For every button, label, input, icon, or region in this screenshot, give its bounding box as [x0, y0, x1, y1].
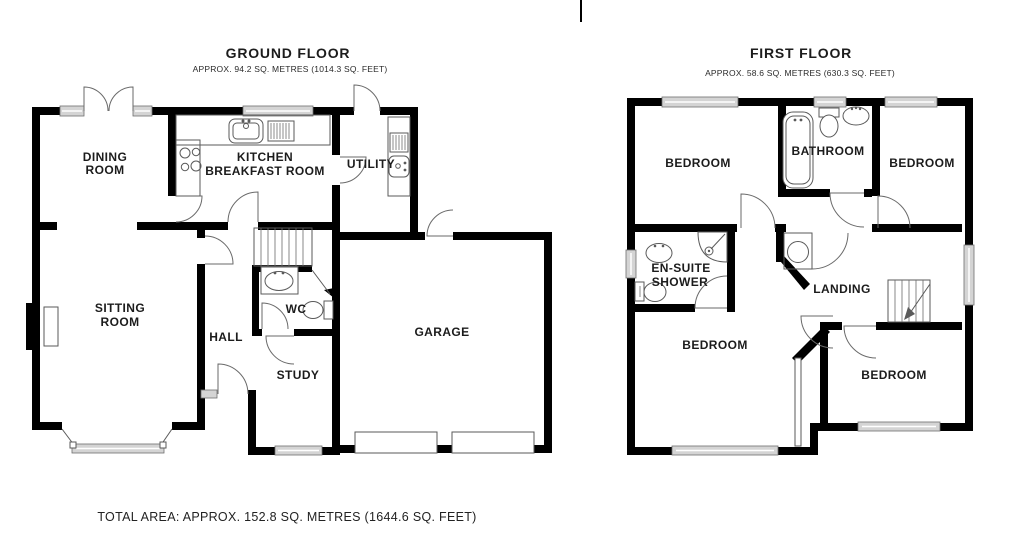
en-suite-window: [626, 250, 636, 278]
sitting-room-label: SITTING: [95, 301, 145, 315]
utility-back-door: [354, 85, 380, 111]
hall-label: HALL: [209, 330, 243, 344]
dining-kitchen-door: [176, 196, 202, 222]
bathroom-door: [830, 193, 864, 227]
first-floor-subtitle: APPROX. 58.6 SQ. METRES (630.3 SQ. FEET): [705, 68, 895, 78]
toilet-icon: [819, 108, 839, 137]
dining-window-left: [60, 106, 84, 116]
hall-kitchen-door: [228, 192, 258, 222]
total-area-text: TOTAL AREA: APPROX. 152.8 SQ. METRES (16…: [97, 510, 476, 524]
bay-window: [62, 429, 172, 453]
chimney-breast: [26, 303, 40, 350]
draining-board-icon: [268, 121, 294, 141]
bathroom-label: BATHROOM: [792, 144, 865, 158]
basin-icon: [843, 107, 869, 125]
page-divider-mark: [580, 0, 582, 22]
study-door: [266, 336, 294, 364]
wc-label: WC: [286, 302, 307, 316]
dining-window-right: [133, 106, 152, 116]
garage-door-right: [452, 432, 534, 453]
french-doors: [84, 87, 133, 111]
first-floor-title: FIRST FLOOR: [750, 45, 852, 61]
bedroom-tl-door: [741, 194, 775, 228]
utility-label: UTILITY: [347, 157, 395, 171]
bedroom-br-window: [858, 422, 940, 431]
bathroom-window: [814, 97, 846, 107]
bedroom-tl-window: [662, 97, 738, 107]
bedroom-tr-label: BEDROOM: [889, 156, 954, 170]
kitchen-sink-icon: [229, 119, 263, 143]
garage-side-door: [427, 210, 453, 236]
bedroom-tl-label: BEDROOM: [665, 156, 730, 170]
staircase-first: [888, 280, 930, 322]
sitting-hall-door: [205, 236, 233, 264]
utility-appliance-icon: [390, 133, 408, 152]
dining-room-label: DINING: [83, 150, 127, 164]
dining-room-label-2: ROOM: [86, 163, 125, 177]
wardrobe-partition: [795, 358, 801, 446]
landing-label: LANDING: [813, 282, 870, 296]
bedroom-tr-door: [878, 196, 910, 228]
front-door: [218, 364, 248, 394]
ground-floor-plan: DINING ROOM KITCHEN BREAKFAST ROOM UTILI…: [26, 85, 552, 455]
bedroom-br-label: BEDROOM: [861, 368, 926, 382]
bedroom-br-door: [844, 326, 876, 358]
wc-basin-icon: [261, 267, 298, 294]
sitting-room-label-2: ROOM: [101, 315, 140, 329]
study-label: STUDY: [277, 368, 320, 382]
floorplan-drawing: GROUND FLOOR APPROX. 94.2 SQ. METRES (10…: [0, 0, 1016, 544]
shower-cubicle-icon: [698, 232, 727, 262]
first-floor-plan: BEDROOM BATHROOM BEDROOM EN-SUITE SHOWER…: [626, 97, 974, 455]
kitchen-label-2: BREAKFAST ROOM: [205, 164, 325, 178]
bedroom-bl-window: [672, 446, 778, 455]
en-suite-basin-icon: [646, 244, 672, 263]
ground-floor-subtitle: APPROX. 94.2 SQ. METRES (1014.3 SQ. FEET…: [193, 64, 388, 74]
ground-floor-title: GROUND FLOOR: [226, 45, 351, 61]
kitchen-label: KITCHEN: [237, 150, 293, 164]
en-suite-label-2: SHOWER: [652, 275, 708, 289]
study-window: [275, 446, 322, 455]
wc-toilet-icon: [303, 301, 333, 319]
garage-label: GARAGE: [414, 325, 469, 339]
fireplace-icon: [44, 307, 58, 346]
bedroom-bl-label: BEDROOM: [682, 338, 747, 352]
en-suite-label: EN-SUITE: [651, 261, 710, 275]
wc-door: [262, 303, 288, 329]
landing-side-window: [964, 245, 974, 305]
hob-icon: [180, 148, 201, 171]
front-door-sidelight: [201, 390, 217, 398]
floorplan-page: GROUND FLOOR APPROX. 94.2 SQ. METRES (10…: [0, 0, 1016, 544]
hot-water-cylinder-icon: [788, 242, 809, 263]
garage-door-left: [355, 432, 437, 453]
bedroom-tr-window: [885, 97, 937, 107]
airing-cupboard-door: [812, 233, 848, 269]
